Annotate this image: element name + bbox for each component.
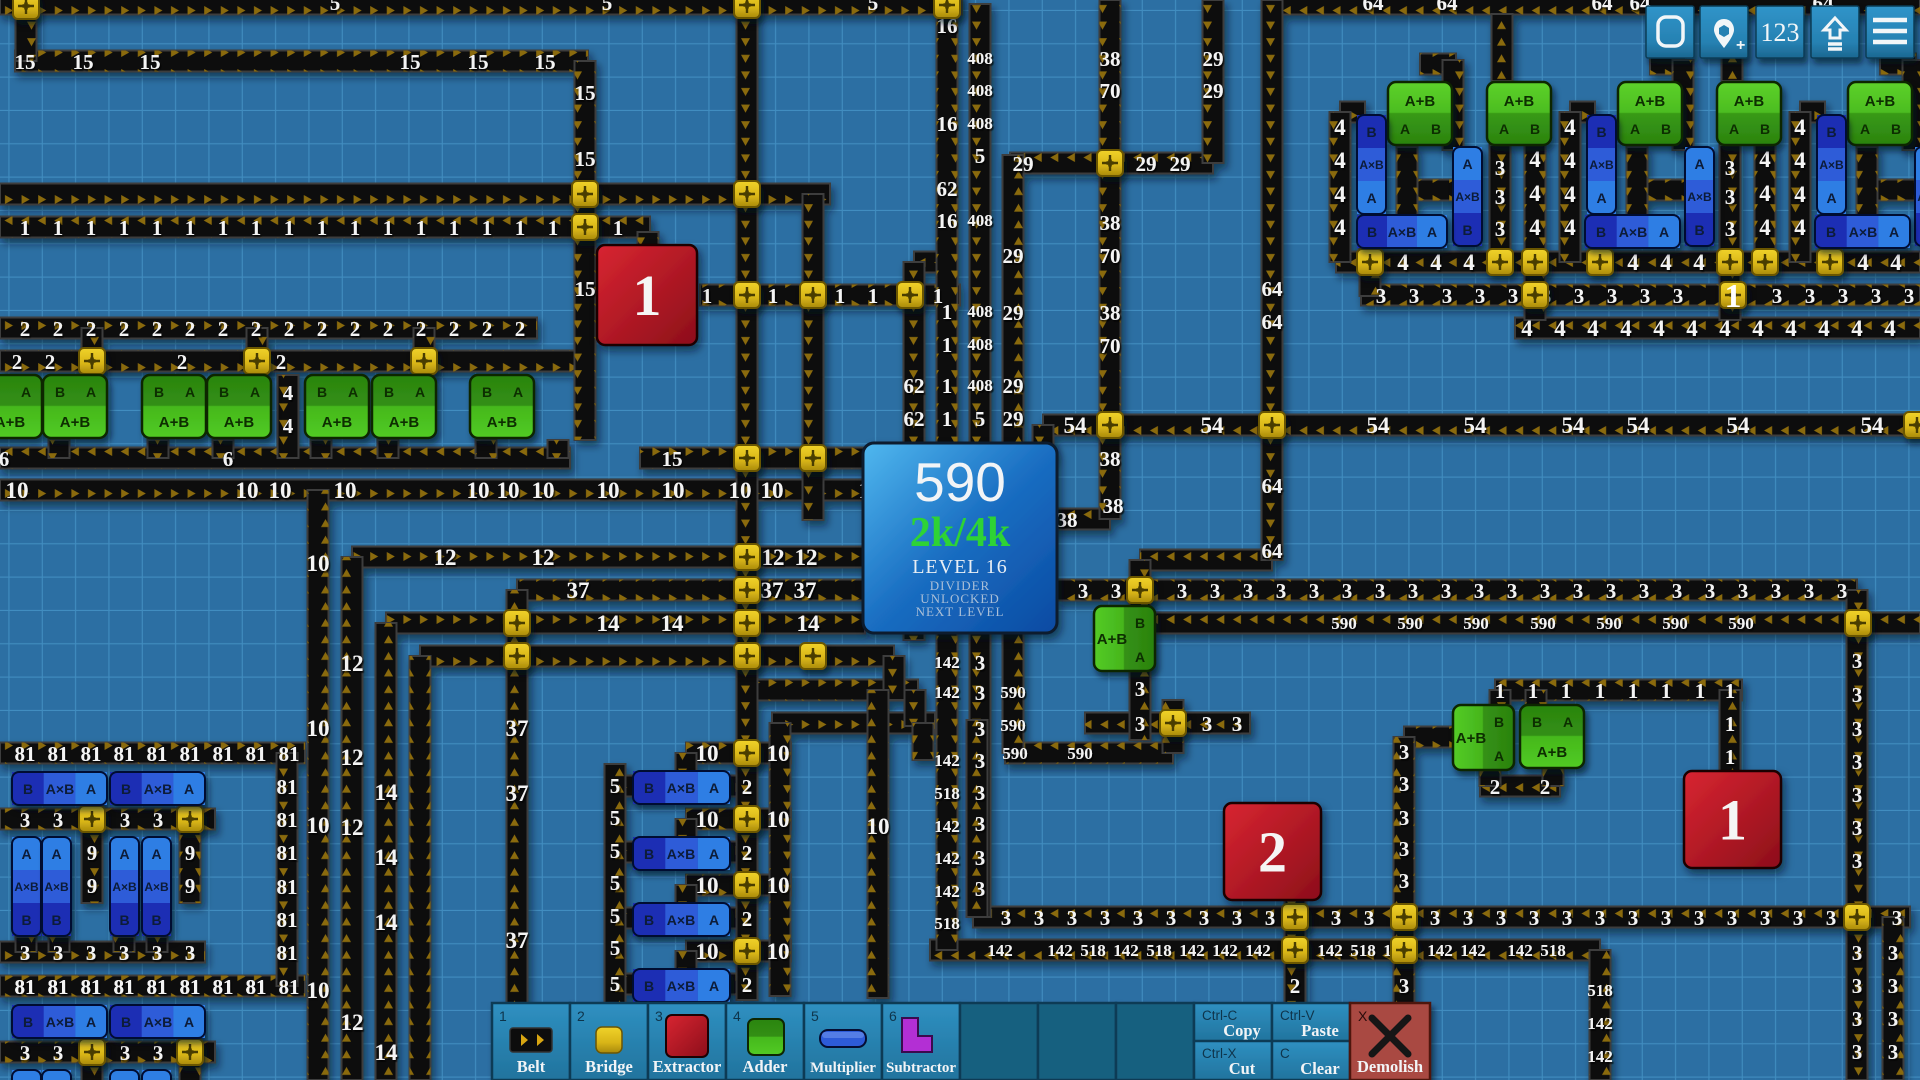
- svg-text:A: A: [415, 384, 425, 400]
- svg-text:15: 15: [575, 277, 596, 301]
- svg-text:64: 64: [1592, 0, 1614, 15]
- svg-text:1: 1: [1725, 745, 1736, 769]
- svg-text:14: 14: [375, 1040, 399, 1065]
- svg-text:3: 3: [1725, 156, 1736, 180]
- svg-text:12: 12: [341, 815, 364, 840]
- svg-text:A: A: [1889, 224, 1899, 240]
- svg-text:70: 70: [1100, 334, 1121, 358]
- svg-text:B: B: [644, 780, 654, 796]
- svg-text:408: 408: [967, 114, 993, 133]
- svg-text:1: 1: [933, 284, 944, 308]
- svg-text:3: 3: [1375, 579, 1386, 603]
- svg-text:3: 3: [1852, 649, 1863, 673]
- svg-text:142: 142: [1245, 941, 1271, 960]
- svg-text:15: 15: [575, 81, 596, 105]
- svg-text:3: 3: [1177, 579, 1188, 603]
- svg-text:2: 2: [742, 841, 753, 865]
- svg-text:37: 37: [567, 578, 590, 603]
- svg-text:4: 4: [1334, 215, 1346, 240]
- svg-text:2: 2: [317, 317, 328, 341]
- svg-text:A×B: A×B: [667, 780, 695, 796]
- svg-text:A: A: [1694, 156, 1704, 172]
- svg-text:B: B: [1891, 121, 1901, 137]
- svg-text:10: 10: [236, 478, 259, 503]
- svg-text:1: 1: [284, 216, 295, 240]
- svg-text:3: 3: [1100, 906, 1111, 930]
- svg-text:10: 10: [532, 478, 555, 503]
- svg-text:A+B: A+B: [224, 414, 255, 431]
- svg-text:54: 54: [1861, 413, 1885, 438]
- svg-text:12: 12: [341, 1010, 364, 1035]
- svg-text:590: 590: [1000, 716, 1026, 735]
- svg-text:A×B: A×B: [144, 1014, 172, 1030]
- svg-text:A: A: [86, 781, 96, 797]
- svg-text:12: 12: [434, 545, 457, 570]
- svg-text:2: 2: [45, 350, 56, 374]
- svg-text:142: 142: [934, 751, 960, 770]
- svg-text:3: 3: [1837, 579, 1848, 603]
- svg-text:3: 3: [1399, 772, 1410, 796]
- svg-text:A+B: A+B: [1504, 93, 1535, 110]
- svg-text:590: 590: [1596, 614, 1622, 633]
- svg-text:3: 3: [1852, 849, 1863, 873]
- svg-text:3: 3: [1852, 717, 1863, 741]
- svg-text:15: 15: [15, 50, 36, 74]
- svg-text:2: 2: [185, 317, 196, 341]
- svg-text:81: 81: [277, 775, 298, 799]
- svg-text:4: 4: [1794, 215, 1806, 240]
- svg-text:142: 142: [1212, 941, 1238, 960]
- svg-text:1: 1: [548, 216, 559, 240]
- svg-text:3: 3: [1265, 906, 1276, 930]
- svg-text:142: 142: [934, 817, 960, 836]
- svg-text:14: 14: [375, 910, 399, 935]
- svg-text:62: 62: [937, 177, 958, 201]
- svg-text:3: 3: [1871, 284, 1882, 308]
- svg-text:3: 3: [53, 941, 64, 965]
- svg-text:15: 15: [662, 447, 683, 471]
- svg-text:2: 2: [284, 317, 295, 341]
- svg-text:2: 2: [1258, 820, 1287, 885]
- svg-text:3: 3: [1034, 906, 1045, 930]
- svg-text:81: 81: [81, 742, 102, 766]
- svg-text:15: 15: [400, 50, 421, 74]
- svg-text:A: A: [1630, 121, 1640, 137]
- svg-text:3: 3: [1888, 1007, 1899, 1031]
- svg-text:3: 3: [975, 846, 986, 870]
- svg-text:4: 4: [1529, 147, 1541, 172]
- svg-text:10: 10: [767, 873, 790, 898]
- svg-text:10: 10: [662, 478, 685, 503]
- svg-text:10: 10: [307, 551, 330, 576]
- svg-text:1: 1: [20, 216, 31, 240]
- svg-text:Paste: Paste: [1301, 1021, 1339, 1040]
- svg-text:3: 3: [1852, 1007, 1863, 1031]
- svg-text:29: 29: [1003, 374, 1024, 398]
- svg-text:3: 3: [1793, 906, 1804, 930]
- svg-text:15: 15: [535, 50, 556, 74]
- svg-text:3: 3: [119, 941, 130, 965]
- svg-text:3: 3: [1474, 579, 1485, 603]
- svg-text:64: 64: [1262, 310, 1284, 334]
- svg-text:54: 54: [1562, 413, 1586, 438]
- svg-text:9: 9: [185, 841, 196, 865]
- svg-text:B: B: [1367, 224, 1377, 240]
- svg-text:142: 142: [934, 849, 960, 868]
- svg-text:29: 29: [1170, 152, 1191, 176]
- svg-text:38: 38: [1100, 47, 1121, 71]
- svg-text:3: 3: [1202, 712, 1213, 736]
- svg-text:5: 5: [975, 407, 986, 431]
- svg-text:2: 2: [251, 317, 262, 341]
- svg-text:3: 3: [1852, 783, 1863, 807]
- svg-text:A×B: A×B: [1589, 158, 1614, 172]
- svg-text:B: B: [1135, 615, 1145, 631]
- svg-text:3: 3: [1852, 750, 1863, 774]
- svg-text:81: 81: [277, 875, 298, 899]
- svg-text:A+B: A+B: [487, 414, 518, 431]
- svg-text:81: 81: [48, 975, 69, 999]
- svg-text:3: 3: [1838, 284, 1849, 308]
- svg-text:3: 3: [1376, 284, 1387, 308]
- svg-text:B: B: [1661, 121, 1671, 137]
- svg-text:B: B: [21, 912, 31, 928]
- svg-text:A: A: [1659, 224, 1669, 240]
- svg-text:3: 3: [1738, 579, 1749, 603]
- svg-text:81: 81: [15, 975, 36, 999]
- svg-text:4: 4: [1334, 182, 1346, 207]
- svg-text:518: 518: [1350, 941, 1376, 960]
- svg-text:B: B: [1366, 124, 1376, 140]
- svg-text:12: 12: [341, 651, 364, 676]
- svg-text:10: 10: [696, 873, 719, 898]
- svg-text:81: 81: [48, 742, 69, 766]
- svg-text:A: A: [1826, 190, 1836, 206]
- svg-text:3: 3: [1199, 906, 1210, 930]
- svg-text:81: 81: [279, 742, 300, 766]
- svg-text:B: B: [1532, 714, 1542, 730]
- svg-text:15: 15: [468, 50, 489, 74]
- svg-text:4: 4: [1752, 316, 1764, 341]
- svg-text:3: 3: [1399, 974, 1410, 998]
- svg-text:2: 2: [350, 317, 361, 341]
- svg-text:2k/4k: 2k/4k: [910, 510, 1011, 556]
- svg-text:1: 1: [152, 216, 163, 240]
- svg-text:1: 1: [1528, 679, 1539, 703]
- svg-text:4: 4: [1397, 250, 1409, 275]
- svg-text:3: 3: [1243, 579, 1254, 603]
- svg-text:10: 10: [497, 478, 520, 503]
- svg-text:2: 2: [20, 317, 31, 341]
- svg-text:3: 3: [1442, 284, 1453, 308]
- svg-text:A: A: [709, 780, 719, 796]
- svg-text:16: 16: [937, 209, 958, 233]
- svg-text:54: 54: [1201, 413, 1225, 438]
- svg-text:14: 14: [375, 845, 399, 870]
- svg-text:4: 4: [283, 381, 294, 405]
- svg-text:3: 3: [1232, 906, 1243, 930]
- svg-text:1: 1: [1495, 679, 1506, 703]
- svg-text:NEXT LEVEL: NEXT LEVEL: [916, 604, 1005, 619]
- svg-text:64: 64: [1437, 0, 1459, 15]
- svg-text:4: 4: [1794, 148, 1806, 173]
- svg-text:81: 81: [15, 742, 36, 766]
- svg-text:1: 1: [218, 216, 229, 240]
- svg-text:1: 1: [499, 1008, 507, 1024]
- svg-text:A+B: A+B: [1097, 631, 1128, 648]
- svg-text:2: 2: [119, 317, 130, 341]
- svg-text:B: B: [1596, 224, 1606, 240]
- svg-text:3: 3: [1430, 906, 1441, 930]
- svg-text:A: A: [1494, 748, 1504, 764]
- svg-text:2: 2: [1490, 775, 1501, 799]
- svg-text:3: 3: [1852, 816, 1863, 840]
- svg-text:4: 4: [1818, 316, 1830, 341]
- svg-text:54: 54: [1064, 413, 1088, 438]
- svg-text:A: A: [184, 1014, 194, 1030]
- svg-text:2: 2: [742, 907, 753, 931]
- svg-text:B: B: [1462, 222, 1472, 238]
- svg-text:4: 4: [1521, 316, 1533, 341]
- svg-text:A×B: A×B: [112, 880, 137, 894]
- svg-text:B: B: [219, 384, 229, 400]
- svg-text:B: B: [1431, 121, 1441, 137]
- svg-text:3: 3: [1727, 906, 1738, 930]
- svg-text:142: 142: [1507, 941, 1533, 960]
- svg-text:70: 70: [1100, 244, 1121, 268]
- svg-text:5: 5: [610, 774, 621, 798]
- svg-text:10: 10: [767, 807, 790, 832]
- svg-text:29: 29: [1003, 407, 1024, 431]
- svg-text:Bridge: Bridge: [585, 1057, 633, 1076]
- svg-text:1: 1: [86, 216, 97, 240]
- svg-text:4: 4: [1653, 316, 1665, 341]
- svg-text:1: 1: [1628, 679, 1639, 703]
- svg-text:6: 6: [223, 447, 234, 471]
- svg-text:3: 3: [1399, 806, 1410, 830]
- svg-text:3: 3: [1725, 185, 1736, 209]
- svg-text:5: 5: [610, 936, 621, 960]
- svg-text:1: 1: [942, 374, 953, 398]
- svg-text:3: 3: [1888, 974, 1899, 998]
- svg-text:3: 3: [1607, 284, 1618, 308]
- svg-text:14: 14: [597, 611, 621, 636]
- svg-text:1: 1: [482, 216, 493, 240]
- svg-text:10: 10: [696, 939, 719, 964]
- svg-text:4: 4: [1529, 181, 1541, 206]
- svg-text:15: 15: [575, 147, 596, 171]
- svg-text:3: 3: [1495, 185, 1506, 209]
- svg-text:4: 4: [1884, 316, 1896, 341]
- svg-text:5: 5: [811, 1008, 819, 1024]
- svg-text:10: 10: [307, 716, 330, 741]
- svg-text:2: 2: [53, 317, 64, 341]
- svg-text:3: 3: [1852, 941, 1863, 965]
- svg-text:A: A: [21, 384, 31, 400]
- svg-text:408: 408: [967, 211, 993, 230]
- svg-text:10: 10: [307, 978, 330, 1003]
- svg-text:5: 5: [610, 972, 621, 996]
- svg-text:B: B: [1826, 224, 1836, 240]
- svg-text:142: 142: [1317, 941, 1343, 960]
- svg-text:3: 3: [975, 681, 986, 705]
- svg-text:2: 2: [515, 317, 526, 341]
- svg-text:1: 1: [251, 216, 262, 240]
- svg-text:590: 590: [1000, 683, 1026, 702]
- svg-text:3: 3: [1640, 284, 1651, 308]
- svg-text:81: 81: [213, 742, 234, 766]
- svg-text:590: 590: [1331, 614, 1357, 633]
- svg-text:1: 1: [1561, 679, 1572, 703]
- svg-text:81: 81: [180, 975, 201, 999]
- svg-text:B: B: [119, 912, 129, 928]
- svg-text:A×B: A×B: [1849, 224, 1877, 240]
- svg-text:A×B: A×B: [667, 846, 695, 862]
- svg-text:A: A: [1427, 224, 1437, 240]
- svg-text:B: B: [384, 384, 394, 400]
- svg-text:A+B: A+B: [1635, 93, 1666, 110]
- svg-text:1: 1: [1718, 788, 1747, 853]
- svg-text:2: 2: [577, 1008, 585, 1024]
- svg-text:3: 3: [1562, 906, 1573, 930]
- svg-text:142: 142: [934, 683, 960, 702]
- svg-text:3: 3: [1135, 677, 1146, 701]
- svg-text:1: 1: [1725, 712, 1736, 736]
- svg-text:3: 3: [1399, 740, 1410, 764]
- svg-text:2: 2: [482, 317, 493, 341]
- svg-text:1: 1: [835, 284, 846, 308]
- svg-text:142: 142: [1587, 1047, 1613, 1066]
- svg-text:62: 62: [904, 374, 925, 398]
- svg-text:B: B: [1694, 222, 1704, 238]
- svg-text:2: 2: [742, 973, 753, 997]
- svg-text:3: 3: [152, 941, 163, 965]
- svg-text:3: 3: [185, 941, 196, 965]
- svg-text:3: 3: [1507, 579, 1518, 603]
- svg-text:B: B: [644, 846, 654, 862]
- svg-text:3: 3: [1852, 683, 1863, 707]
- svg-text:4: 4: [1759, 215, 1771, 240]
- svg-text:3: 3: [153, 808, 164, 832]
- svg-text:4: 4: [1794, 182, 1806, 207]
- svg-text:590: 590: [1397, 614, 1423, 633]
- svg-text:1: 1: [53, 216, 64, 240]
- svg-text:12: 12: [532, 545, 555, 570]
- svg-text:9: 9: [87, 874, 98, 898]
- svg-text:81: 81: [147, 975, 168, 999]
- svg-text:5: 5: [610, 839, 621, 863]
- svg-text:2: 2: [742, 775, 753, 799]
- svg-text:4: 4: [1587, 316, 1599, 341]
- svg-text:B: B: [23, 781, 33, 797]
- svg-text:3: 3: [1463, 906, 1474, 930]
- svg-text:A×B: A×B: [46, 781, 74, 797]
- svg-text:3: 3: [1078, 579, 1089, 603]
- svg-text:B: B: [121, 1014, 131, 1030]
- svg-text:3: 3: [1805, 284, 1816, 308]
- svg-text:5: 5: [610, 871, 621, 895]
- svg-text:3: 3: [1673, 284, 1684, 308]
- svg-text:A+B: A+B: [1537, 744, 1568, 761]
- svg-text:3: 3: [1409, 284, 1420, 308]
- svg-text:3: 3: [1067, 906, 1078, 930]
- svg-text:1: 1: [702, 284, 713, 308]
- svg-text:9: 9: [87, 841, 98, 865]
- svg-text:142: 142: [1427, 941, 1453, 960]
- svg-text:3: 3: [53, 808, 64, 832]
- svg-text:3: 3: [1573, 579, 1584, 603]
- svg-text:64: 64: [1262, 277, 1284, 301]
- svg-text:2: 2: [416, 317, 427, 341]
- svg-text:81: 81: [114, 975, 135, 999]
- svg-text:3: 3: [975, 877, 986, 901]
- svg-text:590: 590: [1530, 614, 1556, 633]
- svg-text:3: 3: [1441, 579, 1452, 603]
- svg-text:A: A: [1366, 190, 1376, 206]
- svg-text:B: B: [1494, 714, 1504, 730]
- svg-text:3: 3: [1772, 284, 1783, 308]
- svg-text:A×B: A×B: [1388, 224, 1416, 240]
- svg-text:1: 1: [383, 216, 394, 240]
- svg-text:81: 81: [277, 908, 298, 932]
- svg-text:81: 81: [114, 742, 135, 766]
- svg-text:5: 5: [975, 144, 986, 168]
- svg-text:4: 4: [1794, 115, 1806, 140]
- svg-text:A+B: A+B: [1456, 730, 1487, 747]
- svg-text:3: 3: [20, 941, 31, 965]
- svg-text:A×B: A×B: [46, 1014, 74, 1030]
- svg-text:A: A: [184, 781, 194, 797]
- svg-text:3: 3: [1852, 1040, 1863, 1064]
- svg-text:A+B: A+B: [322, 414, 353, 431]
- svg-text:3: 3: [120, 808, 131, 832]
- svg-text:3: 3: [1852, 974, 1863, 998]
- svg-text:1: 1: [119, 216, 130, 240]
- svg-text:10: 10: [334, 478, 357, 503]
- svg-text:B: B: [1760, 121, 1770, 137]
- svg-text:4: 4: [1620, 316, 1632, 341]
- svg-text:B: B: [1596, 124, 1606, 140]
- svg-text:A: A: [1400, 121, 1410, 137]
- svg-text:5: 5: [868, 0, 879, 15]
- svg-text:10: 10: [761, 478, 784, 503]
- svg-text:64: 64: [1262, 539, 1284, 563]
- svg-text:4: 4: [1463, 250, 1475, 275]
- svg-text:37: 37: [506, 928, 529, 953]
- svg-text:3: 3: [1826, 906, 1837, 930]
- svg-text:B: B: [644, 912, 654, 928]
- svg-text:A+B: A+B: [159, 414, 190, 431]
- svg-text:A: A: [21, 846, 31, 862]
- svg-text:A×B: A×B: [44, 880, 69, 894]
- svg-text:3: 3: [1001, 906, 1012, 930]
- svg-text:2: 2: [1540, 775, 1551, 799]
- svg-text:A×B: A×B: [144, 880, 169, 894]
- svg-text:4: 4: [1785, 316, 1797, 341]
- svg-text:142: 142: [1460, 941, 1486, 960]
- svg-text:A×B: A×B: [1687, 190, 1712, 204]
- svg-text:37: 37: [506, 716, 529, 741]
- svg-text:A: A: [51, 846, 61, 862]
- svg-text:408: 408: [967, 335, 993, 354]
- svg-text:81: 81: [81, 975, 102, 999]
- svg-text:A: A: [1563, 714, 1573, 730]
- svg-text:B: B: [1826, 124, 1836, 140]
- svg-text:Subtractor: Subtractor: [886, 1060, 956, 1076]
- svg-text:B: B: [154, 384, 164, 400]
- svg-text:38: 38: [1057, 508, 1078, 532]
- svg-text:3: 3: [1508, 284, 1519, 308]
